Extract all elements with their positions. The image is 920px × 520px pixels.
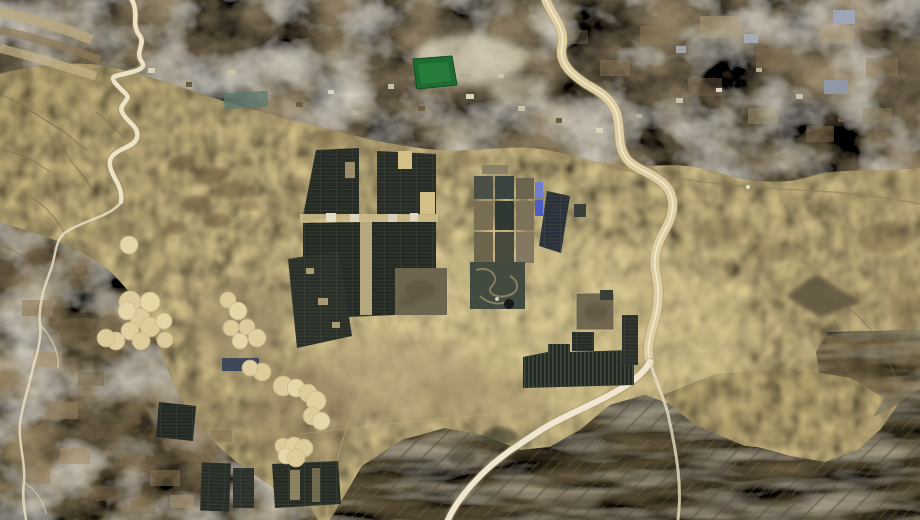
solar-array-block [574,204,586,217]
village-patch [228,70,236,75]
pivot-field [97,329,115,347]
scrub-blob [216,181,248,199]
field-patch [96,486,124,501]
village-patch [466,94,474,99]
scrub-blob [454,154,486,166]
solar-array-block-texture [156,402,196,441]
field-patch [46,402,78,419]
pivot-field [312,412,330,430]
solar-array-block-texture [272,461,341,508]
solar-panel-new-blue [535,200,543,216]
pivot-field [132,332,150,350]
sand-gap [345,162,355,178]
field-patch [700,16,740,38]
satellite-scene [0,0,920,520]
farm-plot [516,201,534,230]
village-patch [676,98,683,103]
feature-layer [0,0,920,520]
sand-gap [332,322,340,328]
solar-array-block-texture [622,315,638,365]
scrub-blob [540,145,580,159]
pivot-field [229,302,247,320]
field-patch [640,26,674,44]
road-structure [746,185,750,189]
farm-plot [495,232,514,263]
village-patch [796,94,803,99]
solar-array-block [600,290,613,300]
scrub-blob [165,222,187,234]
village-patch [518,106,525,111]
village-patch [556,118,562,123]
field-patch [170,495,194,508]
pivot-field [242,360,258,376]
scrub-blob [181,196,211,212]
pivot-field [157,332,173,348]
village-patch [388,84,394,89]
field-patch [806,126,834,142]
field-patch [150,470,180,486]
solar-panel-new-blue [535,182,543,198]
village-patch [636,114,642,118]
sand-gap [306,268,314,274]
sand-gap [312,468,320,502]
field-patch [130,500,156,514]
alkali-flat [490,76,550,104]
scrub-blob [241,201,259,211]
farm-plot [516,232,534,263]
field-patch [688,78,722,96]
solar-substation [326,213,336,222]
gravel-smudge [398,296,418,308]
field-patch [756,48,792,68]
pivot-field [156,313,172,329]
scrub-blob [889,275,920,335]
field-patch [96,424,122,439]
field-patch [748,108,778,124]
pivot-field [232,333,248,349]
village-patch [296,102,303,107]
farm-plot [516,178,534,199]
mountain-edge-blob [482,427,518,445]
greenhouse-cluster [744,34,758,43]
village-patch [838,118,844,122]
village-patch [756,68,762,72]
scrub-blob [690,221,750,243]
pond-structure [495,297,499,301]
solar-array-block-texture [200,463,231,512]
retention-pond [504,299,514,309]
greenhouse-cluster [833,10,855,24]
farm-plot [482,165,508,174]
farm-plot [495,201,514,230]
scrub-blob [205,213,231,227]
field-patch [120,452,146,466]
field-patch [24,470,50,484]
sand-gap [290,470,300,500]
solar-access-road [360,221,372,315]
scrub-area [420,370,540,430]
scrub-blob [308,132,352,148]
sand-gap [398,151,412,169]
scrub-blob [753,243,797,261]
pivot-field [118,302,136,320]
solar-array-block-texture [233,468,254,508]
village-patch [716,88,722,92]
gravel-smudge [584,303,608,321]
village-patch [418,106,425,111]
village-patch [352,110,359,115]
vegetation-patch [224,91,269,109]
farm-plot [474,232,493,263]
farm-plot [495,176,514,199]
field-patch [78,372,104,386]
reservoir-green-inner [418,62,451,84]
solar-substation [410,213,418,221]
scrub-blob [238,158,254,166]
field-patch [820,26,854,44]
farm-plot [474,201,493,230]
sand-gap [420,192,435,214]
farm-plot [474,176,493,199]
field-patch [600,60,630,76]
satellite-image [0,0,920,520]
pivot-field [248,329,266,347]
village-patch [148,68,155,73]
field-patch [60,448,90,464]
greenhouse-cluster [676,46,686,53]
greenhouse-cluster [824,80,848,94]
village-patch [328,90,334,94]
field-patch [866,58,898,76]
mountain-edge-blob [448,450,476,466]
scrub-blob [859,222,911,254]
village-patch [596,128,603,133]
field-patch [22,300,52,316]
pivot-field [287,449,305,467]
sand-gap [318,298,328,305]
field-patch [60,318,94,336]
village-patch [186,82,192,87]
solar-substation [350,214,359,222]
pivot-field [120,236,138,254]
solar-array-block-texture [572,332,594,351]
solar-substation [388,214,397,222]
field-patch [862,108,892,124]
